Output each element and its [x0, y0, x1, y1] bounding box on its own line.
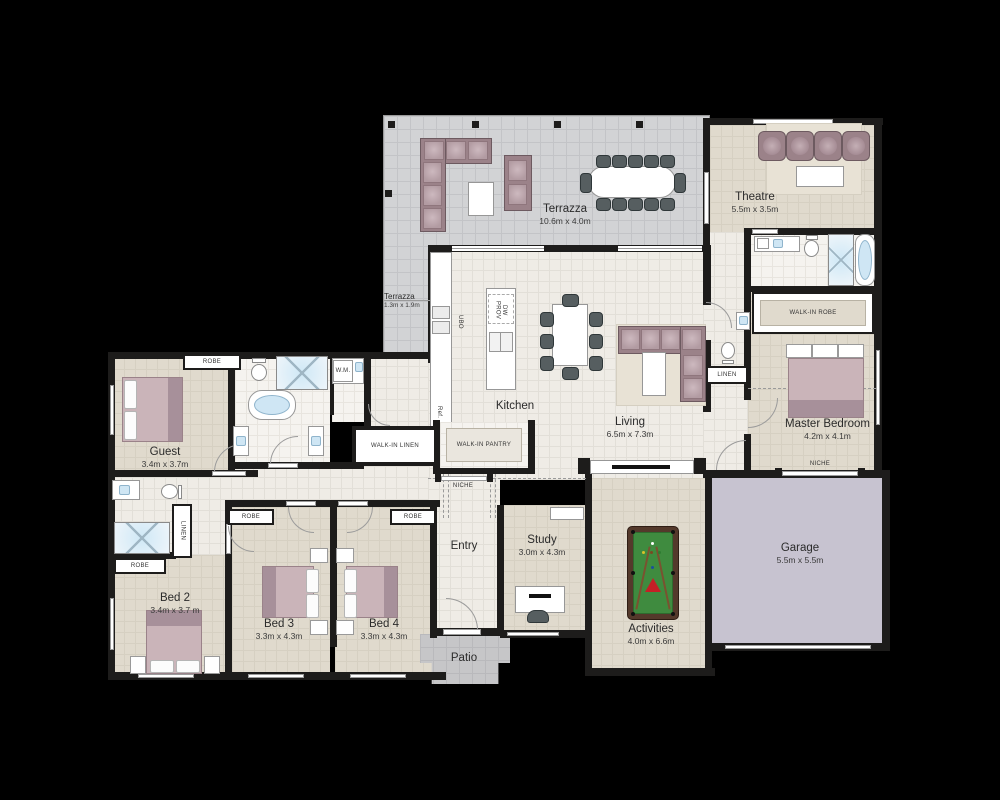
master-niche: [782, 471, 858, 476]
coffee-table: [642, 352, 666, 396]
study-dims: 3.0m x 4.3m: [506, 547, 578, 557]
garage-door: [725, 645, 871, 649]
living-label-group: Living 6.5m x 7.3m: [595, 416, 665, 439]
dishwasher-label: DW PROV: [493, 296, 507, 324]
bath-basin: [236, 436, 246, 446]
ball-green: [658, 551, 661, 554]
bathtub-water: [254, 395, 290, 415]
nightstand: [204, 656, 220, 674]
bed2-window: [110, 598, 114, 650]
guest-label-group: Guest 3.4m x 3.7m: [130, 446, 200, 469]
ensuite-vanity-top: [757, 238, 769, 249]
laundry-sink: [355, 362, 363, 372]
guest-robe: ROBE: [183, 354, 241, 370]
bed2-label: Bed 2: [140, 592, 210, 605]
terrazza-dims: 10.6m x 4.0m: [515, 216, 615, 226]
kitchen-label: Kitchen: [485, 400, 545, 413]
bath-toilet: [251, 364, 267, 381]
walk-in-robe-label: WALK-IN ROBE: [789, 310, 836, 317]
bed4-bed-foot: [384, 567, 397, 617]
niche-cap: [487, 474, 493, 482]
theatre-label: Theatre: [715, 191, 795, 204]
bed3-dims: 3.3m x 4.3m: [243, 631, 315, 641]
bed2-robe-label: ROBE: [131, 563, 149, 570]
theatre-recliner: [786, 131, 814, 161]
terrazza-small-dims: 1.3m x 1.9m: [384, 302, 432, 309]
bed3-bed-foot: [263, 567, 276, 617]
terrazza-small-label: Terrazza: [384, 293, 432, 302]
walk-in-robe: WALK-IN ROBE: [752, 292, 874, 334]
kitchen-appliance: [432, 306, 450, 319]
theatre-side-window: [704, 172, 709, 224]
ball-white: [651, 542, 654, 545]
hall-linen: LINEN: [706, 366, 748, 384]
bedhead-shelf: [812, 344, 838, 358]
wall: [232, 462, 364, 469]
bed2-dims: 3.4m x 3.7 m: [140, 605, 210, 615]
wall: [585, 668, 715, 676]
bedhead-shelf: [838, 344, 864, 358]
wall: [108, 352, 433, 359]
terrace-post: [636, 121, 643, 128]
island-sink-divider: [500, 332, 501, 352]
study-desk: [515, 586, 565, 613]
study-desk-item: [529, 594, 551, 598]
bed4-dims: 3.3m x 4.3m: [348, 631, 420, 641]
wall: [585, 470, 592, 676]
tv-screen: [612, 465, 670, 469]
terrace-post: [388, 121, 395, 128]
terrazza-small-label-group: Terrazza 1.3m x 1.9m: [384, 293, 432, 309]
walk-in-linen: WALK-IN LINEN: [352, 426, 434, 466]
sliding-door: [618, 246, 702, 251]
hall2-toilet: [161, 484, 178, 499]
hall-niche: [441, 476, 487, 481]
wall: [703, 245, 711, 305]
ensuite-shower: [828, 234, 854, 286]
terrazza-label-group: Terrazza 10.6m x 4.0m: [515, 203, 615, 226]
outdoor-side-table: [468, 182, 494, 216]
wall: [497, 505, 504, 635]
ensuite-door-gap: [752, 229, 778, 234]
activities-label: Activities: [613, 623, 689, 636]
tv-wall-cap: [694, 458, 706, 474]
wall: [225, 500, 440, 507]
ball-blue: [651, 566, 654, 569]
niche-cap: [858, 468, 865, 478]
garage-dims: 5.5m x 5.5m: [762, 555, 838, 565]
bedhead-shelf: [786, 344, 812, 358]
bed2-label-group: Bed 2 3.4m x 3.7 m: [140, 592, 210, 615]
theatre-recliner: [842, 131, 870, 161]
hall-linen-label: LINEN: [717, 372, 736, 379]
nightstand: [130, 656, 146, 674]
hall2-linen-label: LINEN: [179, 521, 186, 540]
floor-plan: NICHE WALK-I: [0, 0, 1000, 800]
kitchen-appliance: [432, 321, 450, 334]
tv-wall-cap: [578, 458, 590, 474]
hall2-linen: LINEN: [172, 504, 192, 558]
study-label: Study: [506, 534, 578, 547]
activities-dims: 4.0m x 6.6m: [613, 636, 689, 646]
pool-pocket: [671, 530, 675, 534]
powder-toilet: [721, 342, 735, 359]
theatre-label-group: Theatre 5.5m x 3.5m: [715, 191, 795, 214]
pool-pocket: [631, 571, 635, 575]
bed4-door-gap: [338, 501, 368, 506]
island-sink: [489, 332, 513, 352]
wall: [528, 420, 535, 474]
ball-yellow: [642, 551, 645, 554]
activities-label-group: Activities 4.0m x 6.6m: [613, 623, 689, 646]
bed4-robe-label: ROBE: [404, 514, 422, 521]
study-chair: [527, 610, 549, 623]
nightstand: [310, 548, 328, 563]
pool-pocket: [631, 612, 635, 616]
dining-table: [552, 304, 588, 366]
niche-cap: [775, 468, 782, 478]
master-label: Master Bedroom: [785, 418, 870, 431]
powder-basin: [739, 316, 748, 325]
master-label-group: Master Bedroom 4.2m x 4.1m: [785, 418, 870, 441]
guest-window: [110, 385, 114, 435]
study-label-group: Study 3.0m x 4.3m: [506, 534, 578, 557]
garage-label-group: Garage 5.5m x 5.5m: [762, 542, 838, 565]
terrace-post: [554, 121, 561, 128]
walk-in-robe-shelf: WALK-IN ROBE: [760, 300, 866, 326]
bath-shower: [276, 356, 328, 390]
bed4-window-s: [350, 674, 406, 678]
wall: [882, 470, 890, 651]
pantry-label: WALK-IN PANTRY: [457, 442, 511, 449]
bath-basin: [311, 436, 321, 446]
bed3-label-group: Bed 3 3.3m x 4.3m: [243, 618, 315, 641]
living-label: Living: [595, 416, 665, 429]
bed3-window-s: [248, 674, 304, 678]
guest-bed-foot: [168, 378, 182, 441]
wall: [433, 420, 440, 474]
pool-pocket: [631, 530, 635, 534]
bed3-label: Bed 3: [243, 618, 315, 631]
bed4-label: Bed 4: [348, 618, 420, 631]
master-niche-label: NICHE: [795, 461, 845, 468]
theatre-recliner: [758, 131, 786, 161]
pantry-shelf: WALK-IN PANTRY: [446, 428, 522, 462]
hall-niche-label: NICHE: [437, 483, 489, 490]
ensuite-basin: [773, 239, 783, 248]
ensuite-bath-water: [858, 240, 872, 280]
roof-dash: [495, 474, 496, 518]
hall2-toilet-tank: [178, 485, 182, 499]
sliding-door: [452, 246, 544, 251]
ubo-label: UBO: [453, 302, 463, 342]
hall2-shower: [114, 522, 170, 554]
ball-brown: [650, 551, 653, 554]
bed3-robe-label: ROBE: [242, 514, 260, 521]
study-window-s: [507, 632, 559, 636]
bed4-label-group: Bed 4 3.3m x 4.3m: [348, 618, 420, 641]
wall: [364, 352, 371, 427]
bed2-window-s: [138, 674, 194, 678]
guest-dims: 3.4m x 3.7m: [130, 459, 200, 469]
garage-label: Garage: [762, 542, 838, 555]
bed3-robe: ROBE: [228, 509, 274, 525]
theatre-dims: 5.5m x 3.5m: [715, 204, 795, 214]
study-window-seat: [550, 507, 584, 520]
theatre-ottoman: [796, 166, 844, 187]
washing-machine: W.M.: [333, 360, 353, 382]
ensuite-toilet: [804, 240, 819, 257]
patio-label: Patio: [438, 652, 490, 665]
bed2-robe: ROBE: [114, 558, 166, 574]
terrace-post: [385, 190, 392, 197]
ball-rack-triangle: [645, 578, 661, 592]
wall: [433, 468, 535, 474]
hall2-basin: [119, 485, 130, 495]
master-dims: 4.2m x 4.1m: [785, 431, 870, 441]
pool-pocket: [671, 571, 675, 575]
nightstand: [336, 548, 354, 563]
outdoor-dining-table: [588, 166, 676, 198]
pool-pocket: [671, 612, 675, 616]
bath-toilet-tank: [252, 358, 266, 363]
guest-robe-label: ROBE: [203, 359, 221, 366]
terrace-post: [472, 121, 479, 128]
master-window: [876, 350, 880, 425]
bed4-robe: ROBE: [390, 509, 436, 525]
terrazza-label: Terrazza: [515, 203, 615, 216]
powder-toilet-tank: [722, 360, 734, 364]
bed3-door-gap: [286, 501, 316, 506]
living-dims: 6.5m x 7.3m: [595, 429, 665, 439]
walk-in-linen-label: WALK-IN LINEN: [371, 443, 419, 450]
theatre-recliner: [814, 131, 842, 161]
washing-machine-label: W.M.: [336, 368, 351, 375]
guest-label: Guest: [130, 446, 200, 459]
entry-label: Entry: [440, 540, 488, 553]
master-bed-foot: [789, 400, 863, 417]
